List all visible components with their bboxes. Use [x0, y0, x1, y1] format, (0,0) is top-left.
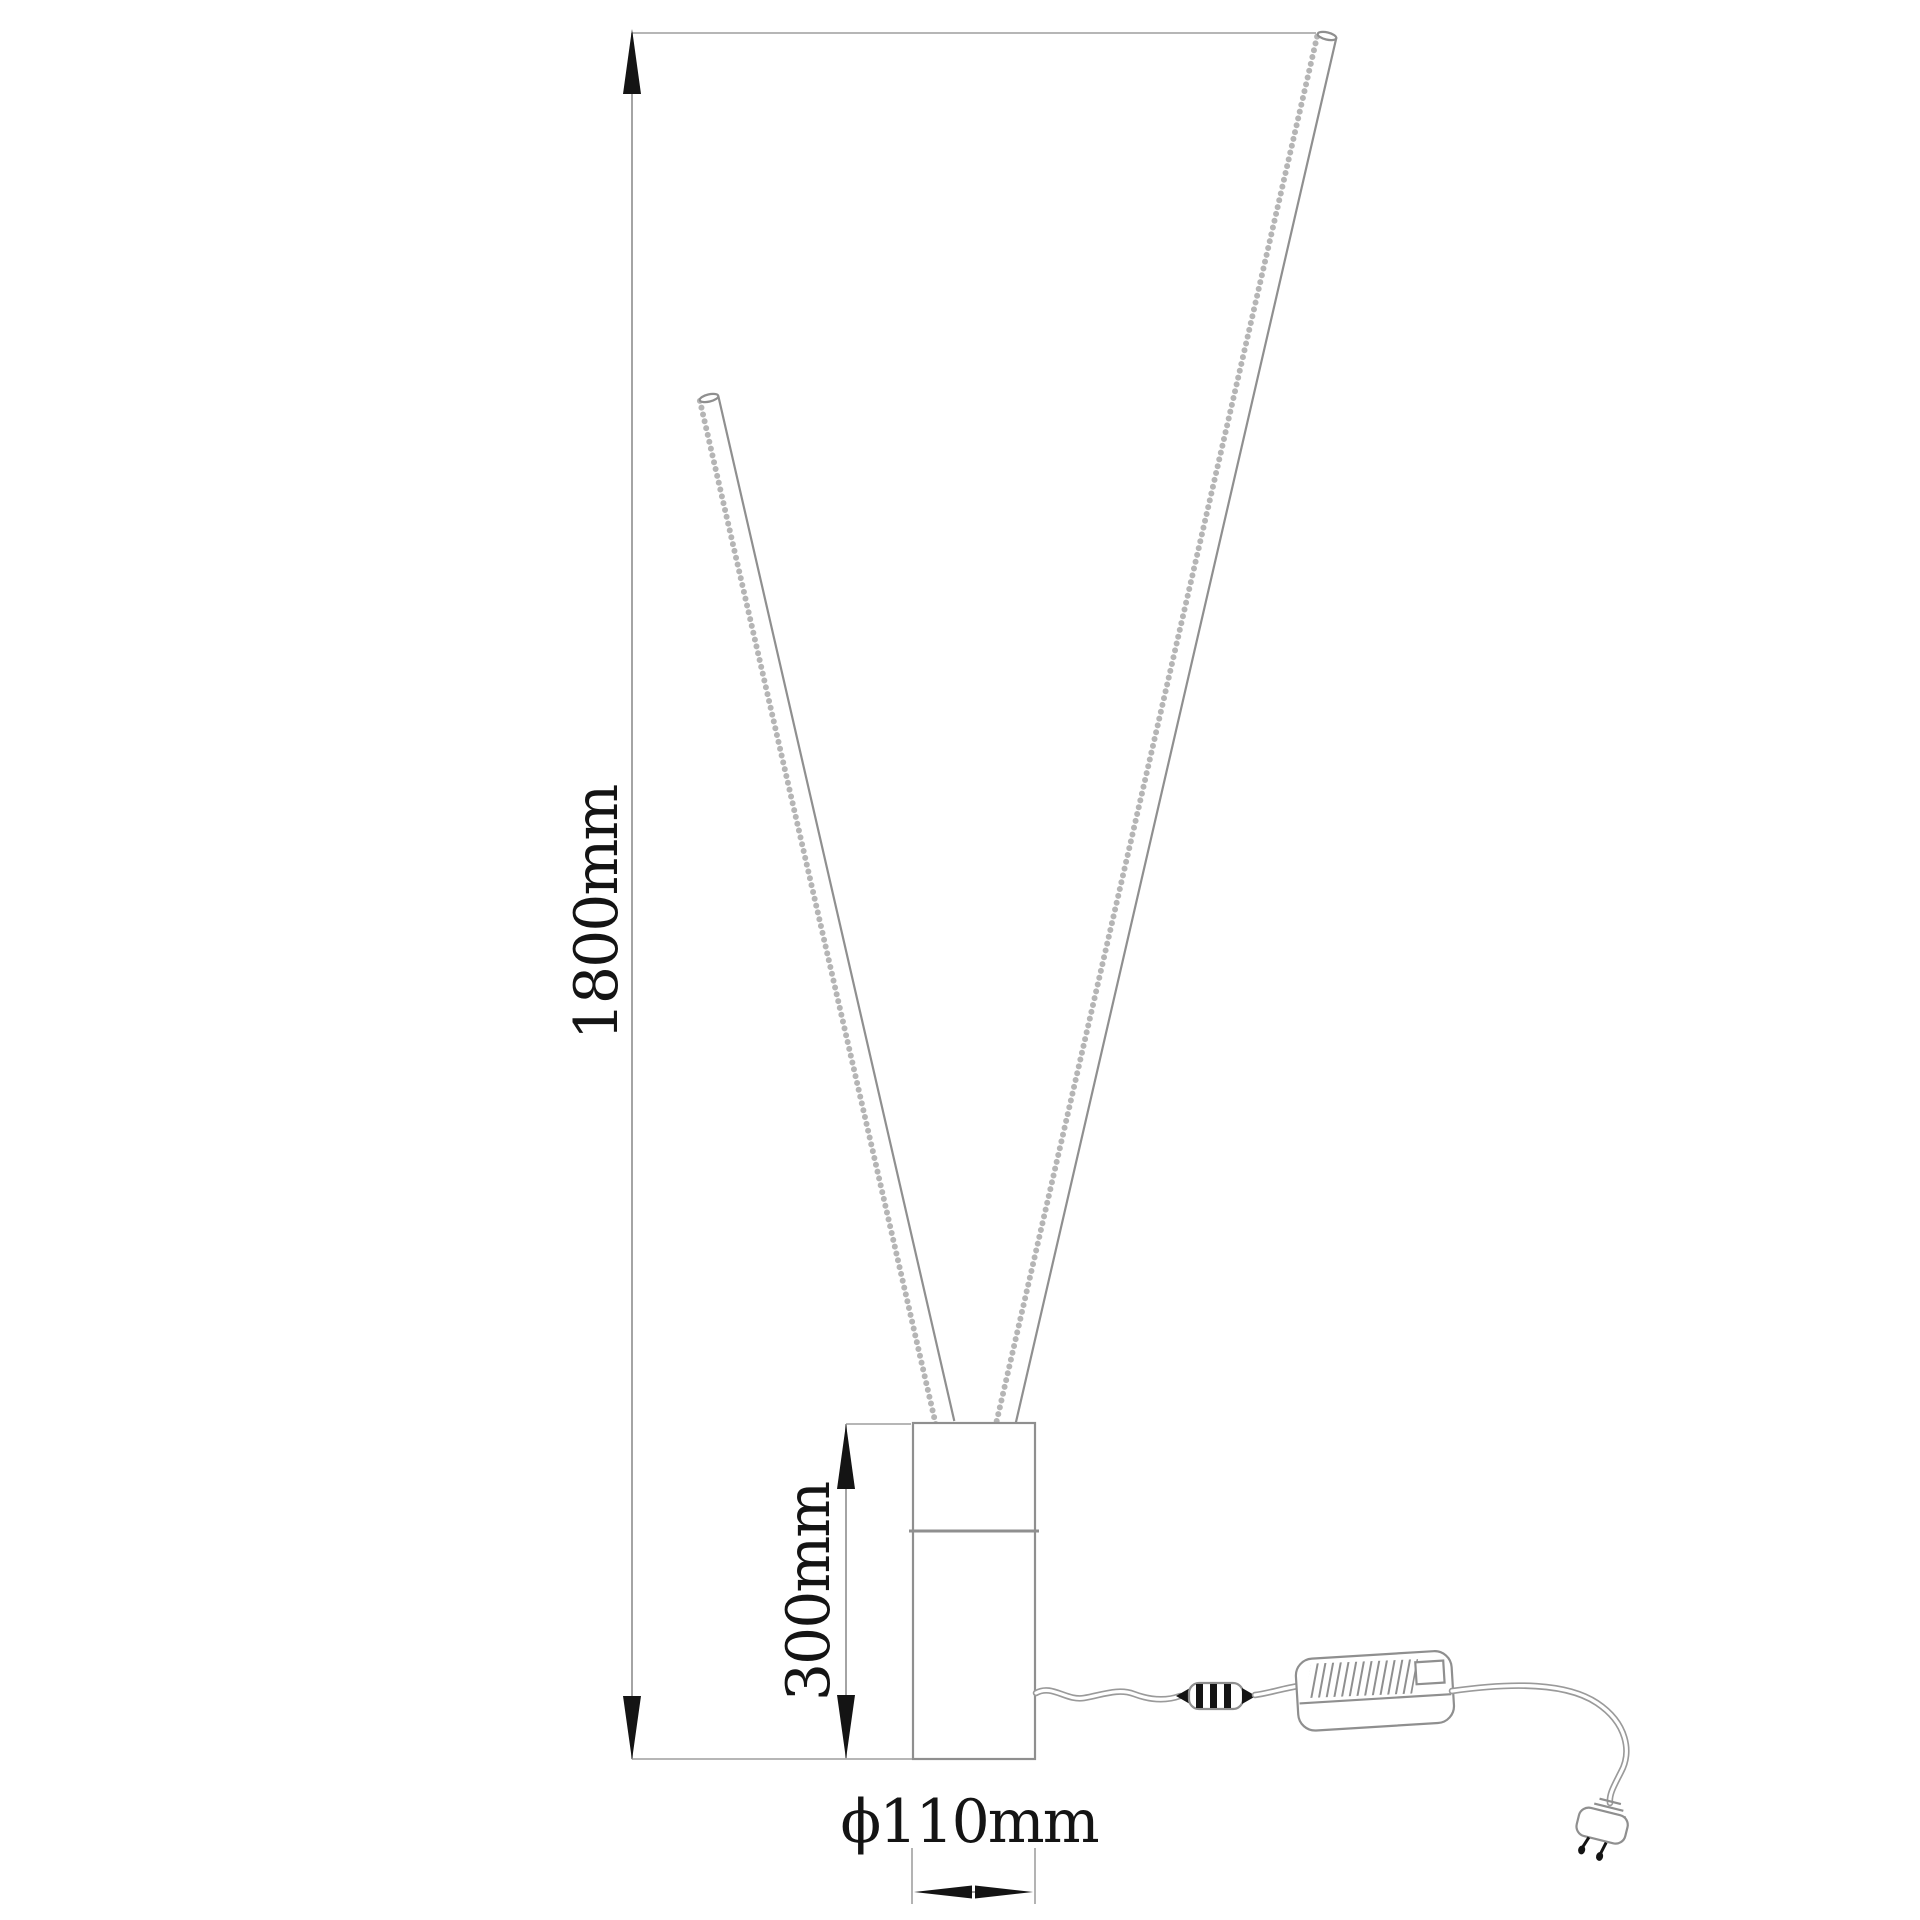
inline-connector — [1176, 1683, 1299, 1709]
arrow-down-icon — [623, 1696, 641, 1760]
left-rod-led-edge — [700, 400, 936, 1424]
lamp-line-art — [0, 0, 1920, 1920]
arrow-right-icon — [975, 1886, 1033, 1899]
arrow-up-icon — [623, 29, 641, 94]
drawing-canvas: 1800mm 300mm ϕ110mm — [0, 0, 1920, 1920]
plug-body — [1574, 1806, 1630, 1846]
power-plug — [1569, 1795, 1632, 1866]
adapter-label-patch — [1415, 1661, 1444, 1685]
arrow-down-icon — [837, 1695, 855, 1759]
base-body — [913, 1423, 1035, 1759]
right-rod-led-edge — [997, 34, 1318, 1421]
arrow-up-icon — [837, 1424, 855, 1489]
plug-prong-tip — [1595, 1851, 1604, 1861]
cord-line — [1452, 1686, 1626, 1803]
lamp-base — [909, 1423, 1039, 1759]
connector-band — [1210, 1684, 1217, 1708]
right-rod-edge — [1015, 38, 1336, 1425]
overall-height-label: 1800mm — [567, 786, 627, 1040]
right-rod-cap — [1317, 30, 1337, 41]
right-light-rod — [997, 30, 1337, 1425]
power-adapter — [1295, 1650, 1455, 1731]
left-rod-edge — [718, 396, 954, 1421]
arrow-left-icon — [914, 1886, 972, 1899]
adapter-vent-hatch — [1303, 1657, 1420, 1700]
left-rod-cap — [699, 392, 719, 403]
base-diameter-label: ϕ110mm — [840, 1792, 1097, 1852]
left-light-rod — [699, 392, 954, 1424]
base-height-label: 300mm — [779, 1483, 839, 1701]
base-height-dimension — [837, 1424, 911, 1759]
connector-band — [1224, 1684, 1231, 1708]
connector-band — [1196, 1684, 1203, 1708]
power-cord-base-section — [1036, 1690, 1180, 1699]
power-cord-plug-section — [1452, 1686, 1626, 1803]
